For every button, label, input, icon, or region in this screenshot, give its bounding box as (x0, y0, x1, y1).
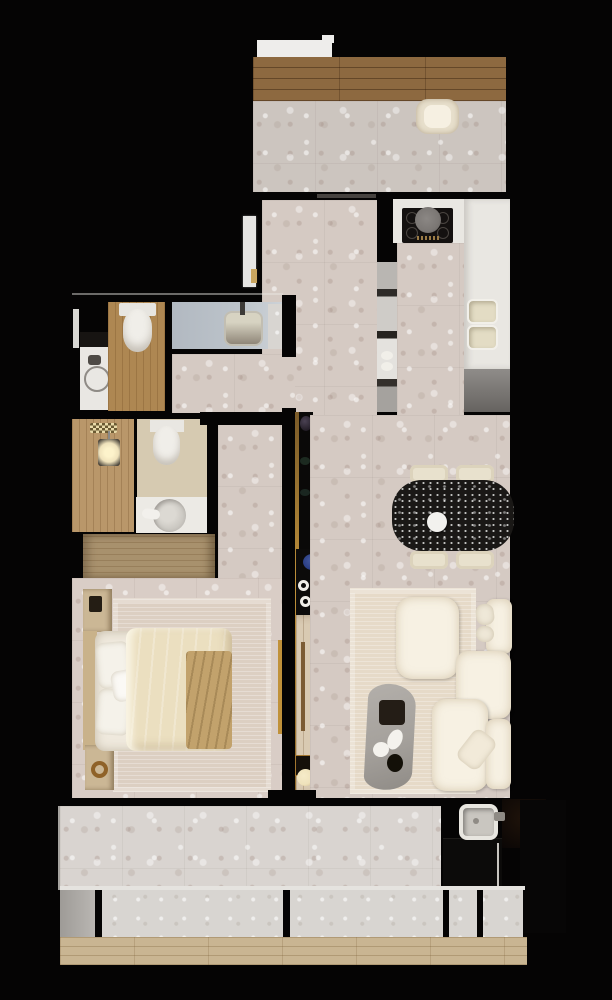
utility-faucet (494, 812, 505, 821)
pendant-light (98, 439, 120, 466)
dining-plate (427, 512, 447, 532)
corridor-door-header (200, 412, 285, 425)
vanity-sink (224, 311, 263, 346)
coffee-table-bowl (387, 754, 403, 772)
cooktop-knobs (417, 236, 439, 240)
console-trim (301, 642, 305, 731)
candle-ring-1 (298, 580, 309, 591)
bed-throw (186, 651, 232, 749)
terrace-deck (60, 937, 527, 965)
balcony-sliding-door (317, 194, 376, 198)
shower-head (90, 423, 117, 433)
partition-wall (282, 408, 296, 798)
dining-chair-4 (456, 551, 494, 569)
shelf-plant-1 (300, 457, 310, 465)
kitchen-floor (397, 243, 464, 415)
corridor-floor (218, 424, 282, 586)
ledge-left-pane (60, 890, 96, 938)
shelf-plant-2 (300, 489, 310, 496)
dining-chair-3 (410, 551, 448, 569)
bathroom1-lower-floor (172, 354, 295, 413)
kitchen-sink-2 (467, 325, 498, 350)
terrace-door-post (268, 790, 316, 806)
shower-wood-floor (72, 419, 134, 532)
nightstand-bottom-decor (91, 761, 108, 778)
balcony-top-deck (253, 57, 506, 101)
terrace-ledge (60, 890, 523, 938)
balcony-armchair (416, 99, 459, 134)
window-mullion-3 (443, 890, 449, 938)
toilet2-bowl (153, 426, 180, 465)
bathroom1-side-door (73, 309, 79, 348)
cooking-pot (415, 207, 441, 233)
bathroom1-wall (282, 295, 296, 357)
window-mullion-1 (95, 890, 102, 938)
wardrobe (83, 534, 215, 579)
cabinet-dish-1 (381, 351, 393, 360)
nightstand-top-decor (89, 596, 102, 612)
cabinet-dish-2 (381, 362, 393, 371)
utility-sink-drain (473, 818, 479, 824)
wall-hairline (72, 293, 283, 295)
vanity-faucet (240, 302, 245, 315)
balcony-top-floor (253, 101, 506, 192)
sofa-ottoman (396, 597, 459, 679)
utility-dark-wall (520, 800, 566, 933)
floor-plan-canvas (0, 0, 612, 1000)
front-door-handle (251, 269, 257, 283)
ac-unit-stub (322, 35, 334, 43)
towel-ring (84, 366, 110, 392)
kitchen-sink-1 (467, 299, 498, 324)
bathroom1-shelf (80, 332, 109, 348)
toilet1-bowl (123, 309, 152, 352)
window-mullion-4 (477, 890, 483, 938)
kitchen-counter-lower (464, 369, 510, 412)
coffee-table-tray (379, 700, 405, 725)
kitchen-tall-cabinet (377, 262, 397, 412)
bathroom1-wall-strip (268, 304, 282, 349)
window-mullion-2 (283, 890, 290, 938)
bathroom2-wall (207, 412, 218, 535)
towel-ring-bracket (88, 355, 101, 365)
terrace-floor (60, 806, 441, 890)
dining-table (392, 480, 514, 551)
armchair-seat (424, 105, 451, 128)
